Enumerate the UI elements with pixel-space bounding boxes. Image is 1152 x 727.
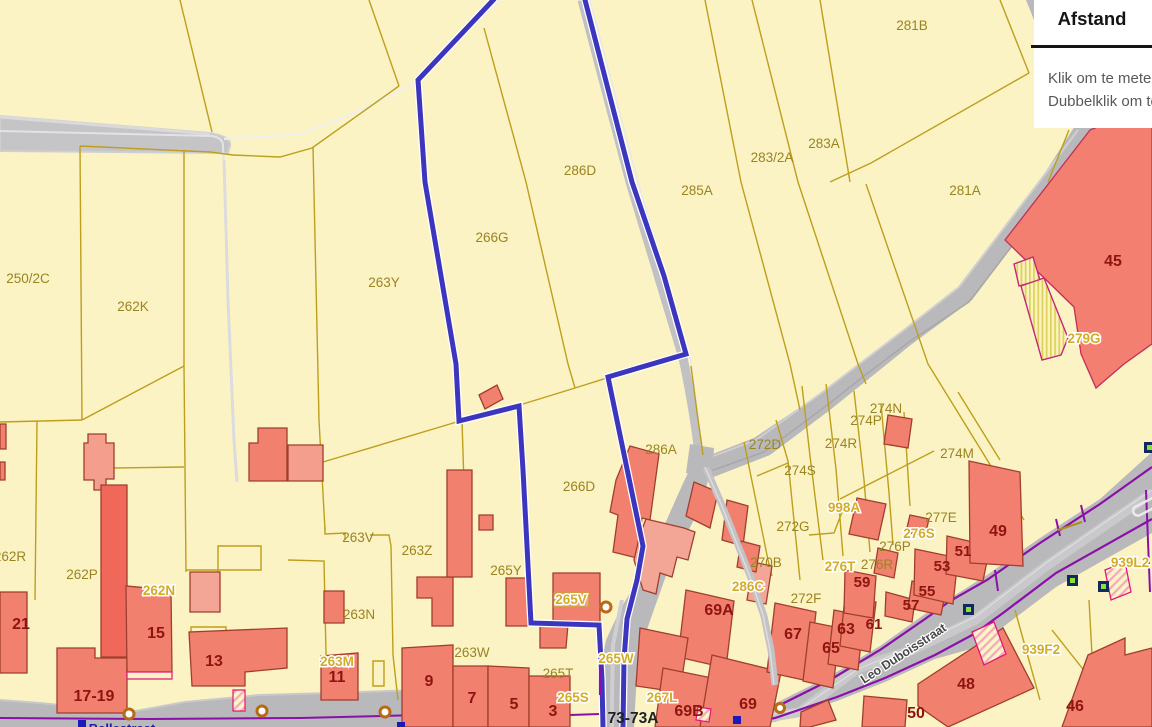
svg-text:69A: 69A [704, 602, 734, 619]
svg-text:262N: 262N [143, 583, 175, 598]
svg-text:69: 69 [739, 696, 757, 713]
svg-text:263Y: 263Y [368, 275, 400, 290]
svg-text:281B: 281B [896, 18, 928, 33]
svg-text:Klik om te meter: Klik om te meter [1048, 70, 1152, 87]
svg-text:274N: 274N [870, 401, 902, 416]
svg-text:57: 57 [903, 597, 920, 614]
svg-text:277E: 277E [925, 510, 957, 525]
svg-text:265V: 265V [555, 592, 587, 607]
svg-text:274R: 274R [825, 436, 858, 451]
svg-text:272F: 272F [791, 591, 822, 606]
svg-text:9: 9 [425, 673, 434, 690]
svg-text:286A: 286A [645, 442, 677, 457]
svg-text:276P: 276P [879, 539, 911, 554]
svg-text:279G: 279G [1067, 331, 1100, 346]
svg-text:283A: 283A [808, 136, 840, 151]
svg-text:73-73A: 73-73A [608, 710, 659, 727]
svg-text:265T: 265T [543, 666, 574, 681]
svg-text:5: 5 [510, 696, 519, 713]
svg-text:7: 7 [468, 690, 477, 707]
svg-text:262R: 262R [0, 549, 26, 564]
svg-text:286D: 286D [564, 163, 597, 178]
svg-text:63: 63 [837, 621, 855, 638]
svg-text:265W: 265W [598, 651, 634, 666]
svg-text:13: 13 [205, 653, 223, 670]
svg-text:67: 67 [784, 626, 802, 643]
svg-text:274S: 274S [784, 463, 816, 478]
svg-text:Dubbelklik om te: Dubbelklik om te [1048, 93, 1152, 110]
svg-text:263M: 263M [320, 654, 354, 669]
svg-text:263V: 263V [342, 530, 374, 545]
svg-text:51: 51 [955, 543, 972, 560]
svg-text:15: 15 [147, 625, 165, 642]
svg-text:Ballestraat: Ballestraat [89, 721, 156, 727]
svg-text:50: 50 [907, 705, 925, 722]
svg-text:939F2: 939F2 [1022, 642, 1060, 657]
svg-text:276R: 276R [861, 557, 894, 572]
svg-text:265S: 265S [557, 690, 589, 705]
svg-text:17-19: 17-19 [74, 688, 115, 705]
svg-text:69B: 69B [674, 703, 703, 720]
svg-text:61: 61 [866, 616, 883, 633]
svg-text:3: 3 [549, 703, 558, 720]
svg-text:46: 46 [1066, 698, 1084, 715]
svg-text:48: 48 [957, 676, 975, 693]
svg-text:267L: 267L [647, 690, 678, 705]
svg-text:281A: 281A [949, 183, 981, 198]
svg-text:939L2: 939L2 [1111, 555, 1149, 570]
svg-text:55: 55 [919, 583, 936, 600]
svg-text:250/2C: 250/2C [6, 271, 50, 286]
svg-text:285A: 285A [681, 183, 713, 198]
svg-text:266D: 266D [563, 479, 596, 494]
svg-text:262P: 262P [66, 567, 98, 582]
svg-text:263W: 263W [454, 645, 490, 660]
svg-text:265Y: 265Y [490, 563, 522, 578]
svg-text:276T: 276T [825, 559, 857, 574]
svg-text:53: 53 [934, 558, 951, 575]
svg-text:263Z: 263Z [402, 543, 433, 558]
svg-text:272D: 272D [749, 437, 782, 452]
svg-text:270B: 270B [750, 555, 782, 570]
svg-text:65: 65 [822, 640, 840, 657]
svg-text:Afstand: Afstand [1058, 8, 1127, 29]
svg-text:263N: 263N [343, 607, 375, 622]
svg-text:283/2A: 283/2A [751, 150, 794, 165]
svg-text:11: 11 [329, 669, 346, 686]
svg-text:998A: 998A [828, 500, 861, 515]
svg-text:45: 45 [1104, 253, 1122, 270]
svg-text:262K: 262K [117, 299, 149, 314]
svg-text:59: 59 [854, 574, 871, 591]
svg-text:21: 21 [12, 616, 30, 633]
svg-text:266G: 266G [475, 230, 508, 245]
svg-text:49: 49 [989, 523, 1007, 540]
svg-text:272G: 272G [776, 519, 809, 534]
svg-text:274M: 274M [940, 446, 974, 461]
svg-text:286C: 286C [732, 579, 765, 594]
